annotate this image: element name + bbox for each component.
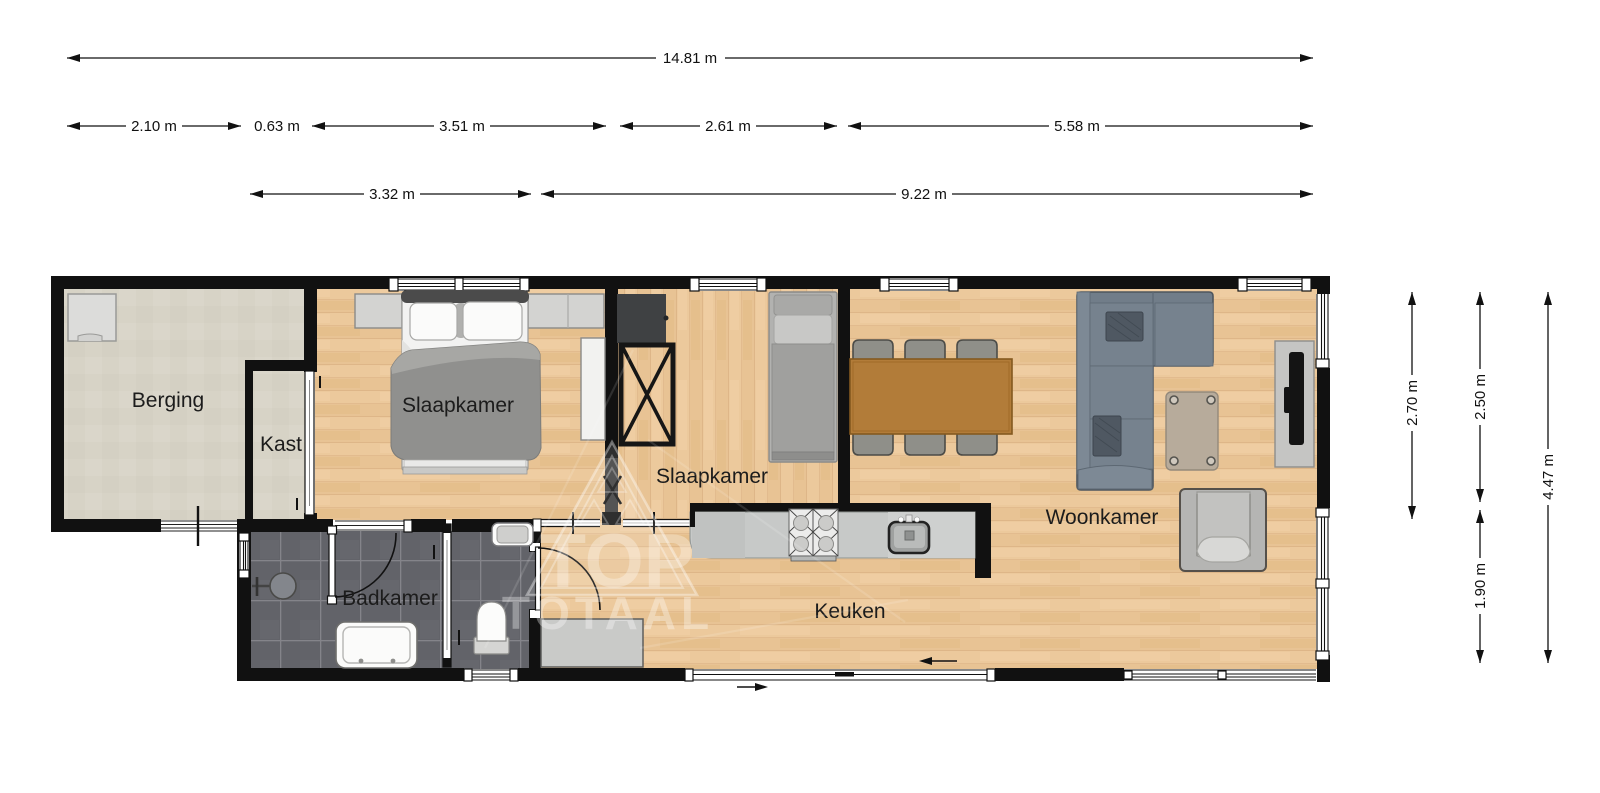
svg-text:2.50 m: 2.50 m [1472, 374, 1489, 420]
svg-text:Kast: Kast [260, 433, 302, 456]
svg-text:2.10 m: 2.10 m [131, 118, 177, 135]
svg-text:3.32 m: 3.32 m [369, 186, 415, 203]
svg-text:Berging: Berging [132, 389, 204, 412]
svg-text:4.47 m: 4.47 m [1540, 454, 1557, 500]
svg-text:2.70 m: 2.70 m [1404, 380, 1421, 426]
svg-text:5.58 m: 5.58 m [1054, 118, 1100, 135]
svg-text:3.51 m: 3.51 m [439, 118, 485, 135]
svg-text:Woonkamer: Woonkamer [1046, 506, 1159, 529]
svg-text:1.90 m: 1.90 m [1472, 563, 1489, 609]
svg-text:9.22 m: 9.22 m [901, 186, 947, 203]
svg-text:14.81 m: 14.81 m [663, 50, 717, 67]
svg-text:Slaapkamer: Slaapkamer [402, 394, 514, 417]
svg-text:TOTAAL: TOTAAL [502, 587, 714, 639]
svg-text:Badkamer: Badkamer [342, 587, 438, 610]
svg-text:0.63 m: 0.63 m [254, 118, 300, 135]
svg-text:2.61 m: 2.61 m [705, 118, 751, 135]
